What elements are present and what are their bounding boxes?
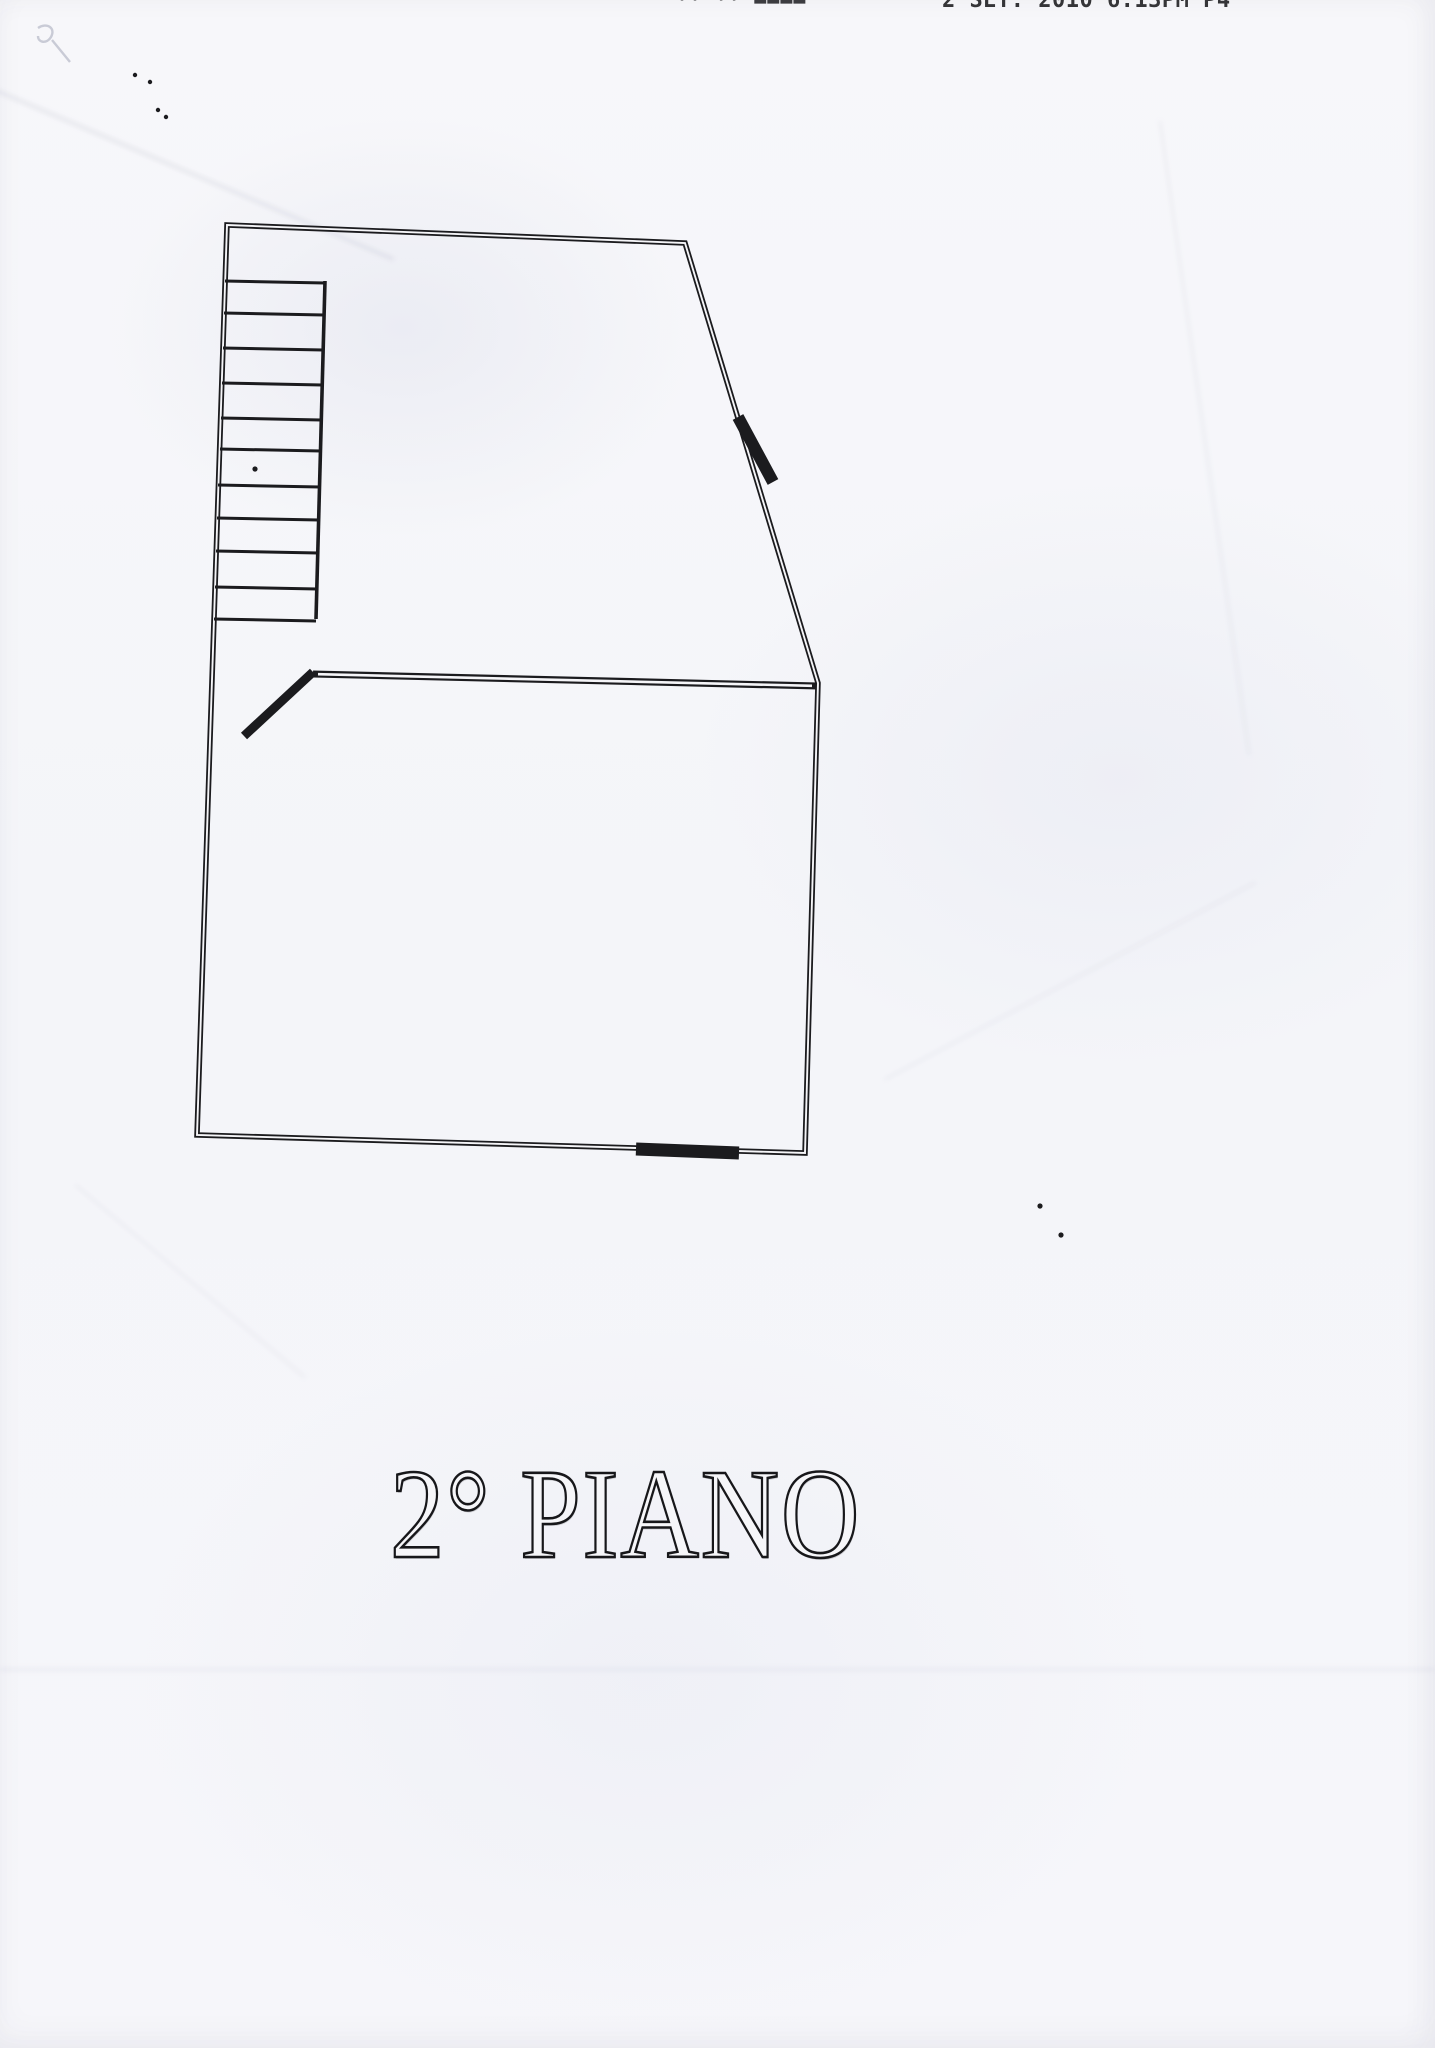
ink-speckle xyxy=(133,73,137,77)
stair-tread xyxy=(217,518,319,520)
stair-tread xyxy=(218,485,320,487)
ink-speckle xyxy=(1037,1203,1042,1208)
stair-tread xyxy=(222,383,322,385)
stair-tread xyxy=(223,348,323,350)
stair-tread xyxy=(215,587,317,589)
ink-speckle xyxy=(164,115,168,119)
pencil-mark xyxy=(38,26,70,62)
stair-tread xyxy=(225,281,325,283)
floor-label: 2° PIANO xyxy=(390,1441,861,1591)
floor-plan-drawing xyxy=(0,0,1435,2048)
stair-tread xyxy=(214,619,316,621)
door-swing-stroke xyxy=(244,672,313,736)
ink-speckle xyxy=(156,108,160,112)
stair-tread xyxy=(216,551,318,553)
ink-speckle xyxy=(252,466,257,471)
stair-tread xyxy=(221,418,321,420)
stair-tread xyxy=(220,449,321,451)
ink-speckle xyxy=(1058,1232,1063,1237)
ink-speckle xyxy=(148,80,152,84)
bottom-wall-opening xyxy=(636,1149,739,1153)
stair-tread xyxy=(224,313,324,315)
